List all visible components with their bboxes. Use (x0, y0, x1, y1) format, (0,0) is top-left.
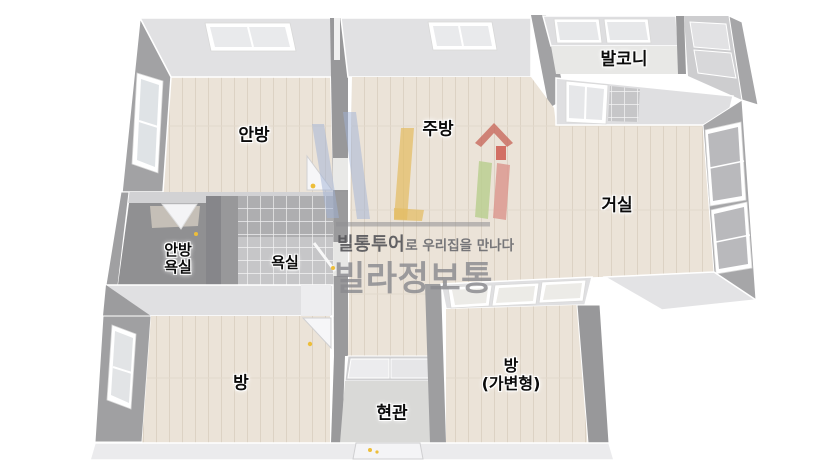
room-label-convertible-room: 방(가변형) (482, 357, 541, 393)
room-label-line: 안방 (164, 242, 192, 259)
door-handle (194, 232, 198, 236)
window-partition-2 (492, 283, 539, 306)
room-label-bathroom: 욕실 (271, 255, 299, 272)
window-room-left (107, 325, 136, 409)
door-handle (375, 450, 378, 453)
balcony-room (543, 16, 758, 125)
watermark-brand: 빌라정보통 (334, 251, 493, 300)
window-balcony-door (566, 81, 608, 124)
wall-bathroom-inner-left (221, 196, 238, 285)
window-balcony-2 (604, 19, 651, 43)
room-top-wall-band (103, 285, 333, 316)
door-handle (368, 448, 372, 452)
wall-bottom-outer (90, 443, 614, 460)
room-label-balcony: 발코니 (601, 50, 648, 69)
bathroom-block (106, 192, 335, 285)
wall-bathroom-divider (206, 196, 221, 285)
room-label-line: 욕실 (164, 259, 192, 276)
floorplan-canvas: 빌통투어로 우리집을 만나다 빌라정보통 안방 주방 발코니 거실 안방욕실 욕… (0, 0, 840, 472)
window-living-right-1 (705, 122, 746, 206)
entrance-closet-panel (348, 359, 389, 378)
room-label-master-bedroom: 안방 (238, 126, 269, 145)
logo-letter-l-foot (394, 208, 424, 221)
front-door (353, 443, 423, 459)
entrance-closet-panel (391, 359, 430, 378)
room-label-kitchen: 주방 (422, 120, 453, 139)
window-partition-3 (539, 280, 586, 303)
balcony-tile-grid (608, 86, 640, 122)
door-opening-master-bedroom (333, 158, 348, 190)
logo-divider-line (336, 222, 490, 227)
room-label-entrance: 현관 (376, 404, 407, 423)
wall-gap (334, 18, 340, 60)
window-kitchen-top (428, 22, 497, 50)
door-handle (308, 342, 312, 346)
window-master-bedroom-top (205, 23, 296, 51)
room-label-line: 방 (482, 357, 541, 375)
utility-shelf (694, 50, 736, 78)
room-left (95, 316, 331, 443)
entrance-area (340, 356, 433, 443)
door-handle (311, 184, 316, 189)
window-balcony-1 (554, 19, 602, 43)
window-master-bedroom-left (132, 73, 163, 173)
room-label-line: (가변형) (482, 375, 541, 393)
window-living-right-2 (711, 202, 752, 274)
room-label-room: 방 (233, 374, 249, 393)
utility-shelf (690, 22, 730, 50)
bathroom-wall-tile-grid (238, 196, 333, 237)
room-label-master-bathroom: 안방욕실 (164, 242, 192, 276)
master-bedroom-room (122, 18, 348, 192)
door-opening-room (301, 285, 331, 316)
room-label-living-room: 거실 (601, 196, 632, 215)
